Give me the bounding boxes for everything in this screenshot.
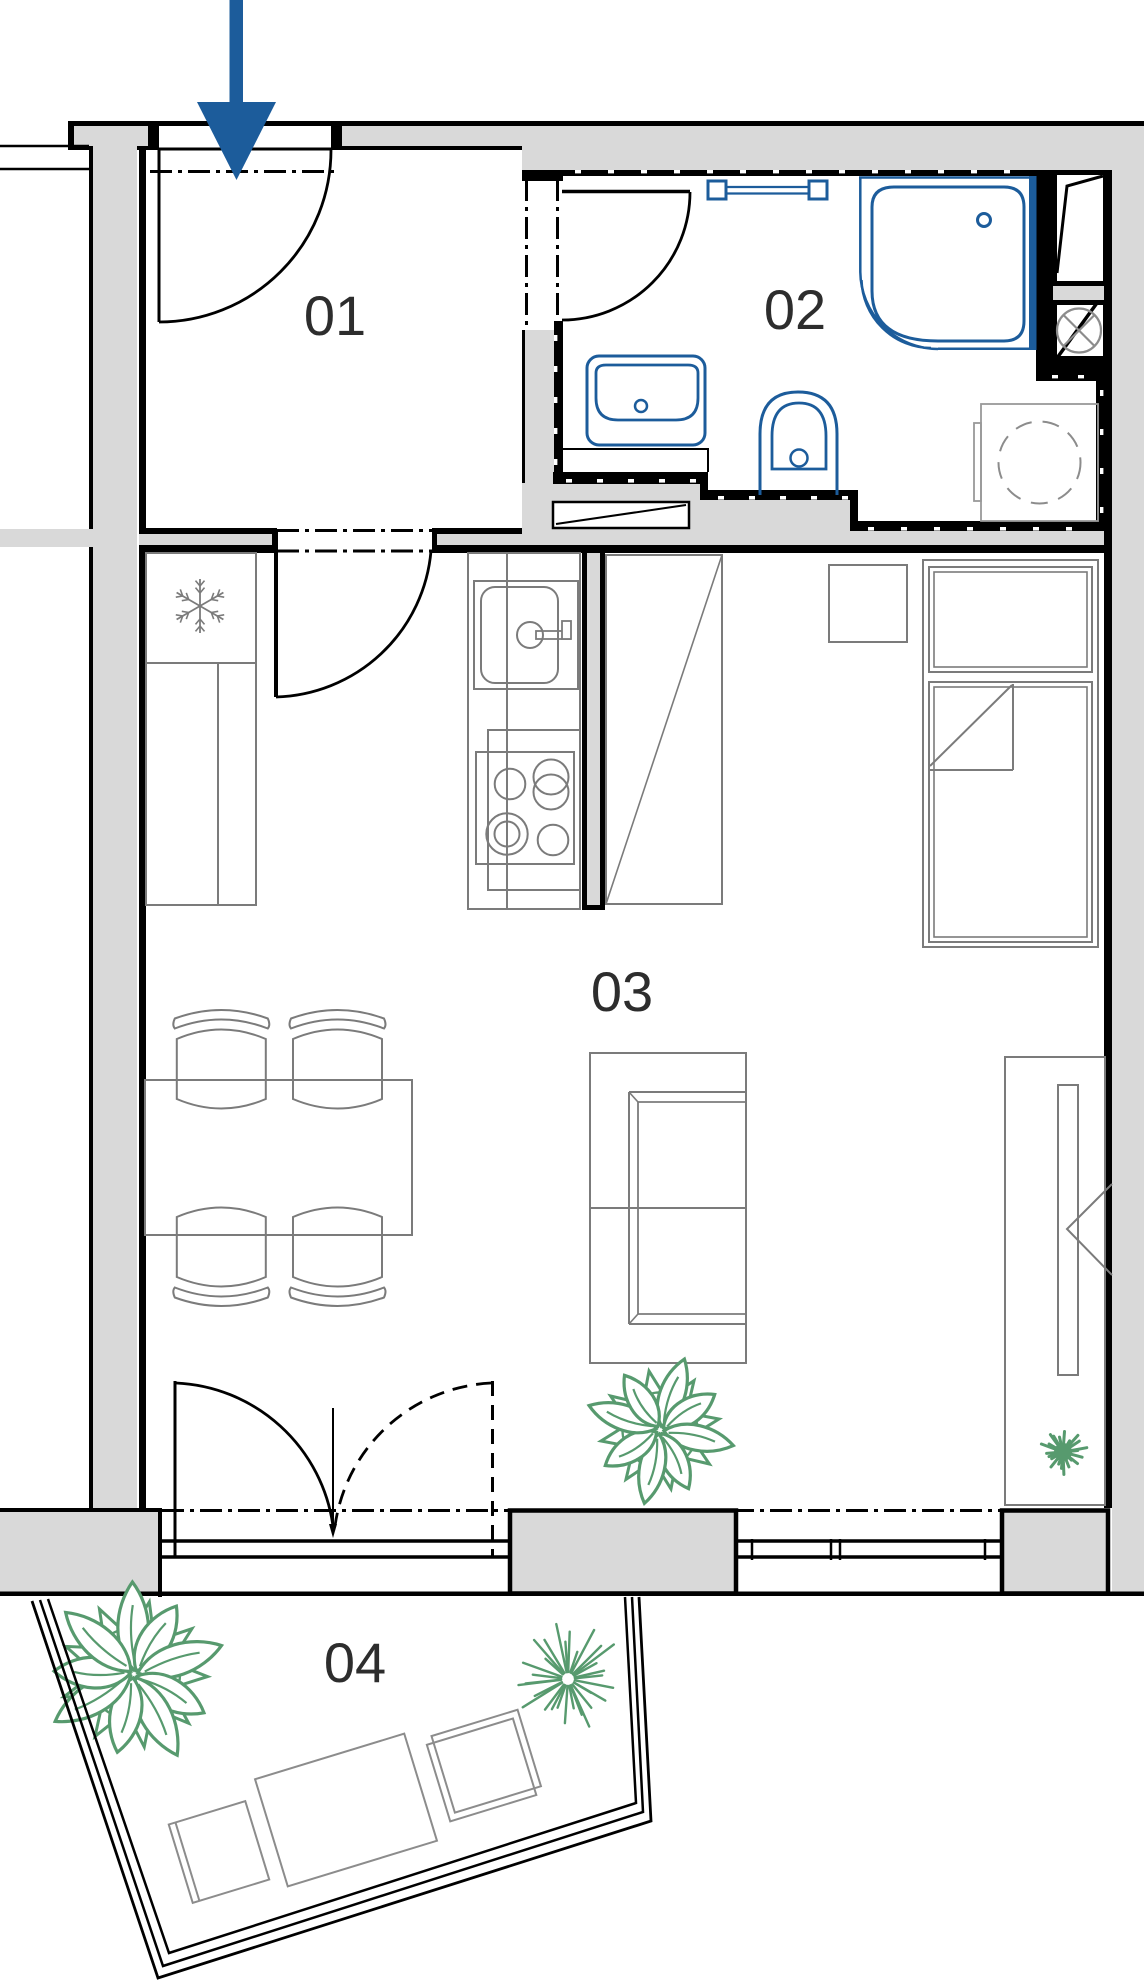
svg-text:04: 04 — [324, 1631, 386, 1694]
svg-text:02: 02 — [764, 278, 826, 341]
svg-text:01: 01 — [304, 284, 366, 347]
svg-text:03: 03 — [591, 960, 653, 1023]
